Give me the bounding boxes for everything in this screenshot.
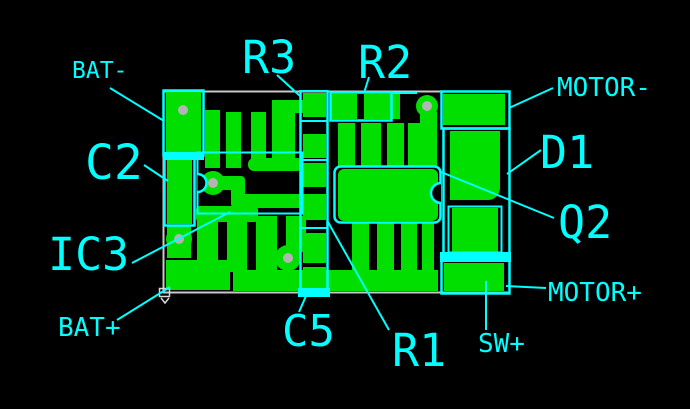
origin-marker-arrow xyxy=(161,298,169,303)
callout-label-c5[interactable]: C5 xyxy=(282,310,335,354)
copper-trace[interactable] xyxy=(272,100,304,113)
callout-label-r1[interactable]: R1 xyxy=(392,328,446,373)
callout-label-motor-plus[interactable]: MOTOR+ xyxy=(548,280,642,306)
copper-trace[interactable] xyxy=(231,194,303,208)
callout-label-q2[interactable]: Q2 xyxy=(558,200,612,245)
copper-pad[interactable] xyxy=(303,233,326,263)
copper-finger[interactable] xyxy=(205,110,220,168)
copper-pad[interactable] xyxy=(364,94,391,119)
copper-pad[interactable] xyxy=(303,163,326,187)
callout-label-r3[interactable]: R3 xyxy=(242,35,296,80)
copper-pad[interactable] xyxy=(303,267,326,288)
copper-pad-motor-minus[interactable] xyxy=(443,94,505,125)
callout-leader-motor-plus[interactable] xyxy=(506,286,546,288)
copper-pad[interactable] xyxy=(331,94,357,119)
pcb-editor-canvas: BAT-C2IC3BAT+R3R2MOTOR-D1Q2MOTOR+SW+R1C5 xyxy=(0,0,690,409)
q2-notch xyxy=(431,183,441,203)
copper-pad[interactable] xyxy=(303,93,326,117)
drill-hole xyxy=(283,253,293,263)
callout-label-bat-minus[interactable]: BAT- xyxy=(72,60,127,83)
callout-leader-motor-minus[interactable] xyxy=(509,88,553,108)
copper-pad-motor-plus[interactable] xyxy=(444,263,504,291)
copper-trace[interactable] xyxy=(248,158,303,171)
copper-finger[interactable] xyxy=(361,123,381,167)
copper-pad[interactable] xyxy=(303,194,326,220)
copper-pad-bat-minus[interactable] xyxy=(166,92,201,155)
copper-pour[interactable] xyxy=(338,169,438,221)
copper-finger[interactable] xyxy=(352,223,369,272)
callout-leader-bat-minus[interactable] xyxy=(110,88,164,121)
callout-label-d1[interactable]: D1 xyxy=(540,130,594,175)
copper-finger[interactable] xyxy=(227,216,247,272)
drill-hole xyxy=(208,178,218,188)
callout-label-c2[interactable]: C2 xyxy=(85,139,143,187)
copper-pad-d1[interactable] xyxy=(450,131,500,200)
callout-leader-d1[interactable] xyxy=(507,150,541,174)
outline-c5-band xyxy=(298,288,330,297)
drill-hole xyxy=(422,101,432,111)
copper-finger[interactable] xyxy=(256,216,277,272)
outline-motor-plus-band xyxy=(440,252,511,262)
copper-pad-q2[interactable] xyxy=(452,208,498,252)
ic3-notch xyxy=(198,174,207,192)
copper-finger[interactable] xyxy=(377,223,394,272)
copper-pad[interactable] xyxy=(303,134,326,158)
copper-finger[interactable] xyxy=(387,123,404,167)
callout-label-r2[interactable]: R2 xyxy=(358,40,412,85)
callout-label-sw-plus[interactable]: SW+ xyxy=(478,331,525,357)
copper-finger[interactable] xyxy=(338,123,355,167)
drill-hole xyxy=(178,105,188,115)
copper-finger[interactable] xyxy=(226,112,241,168)
callout-label-bat-plus[interactable]: BAT+ xyxy=(58,315,121,341)
callout-leader-bat-plus[interactable] xyxy=(117,287,170,320)
copper-finger[interactable] xyxy=(401,223,417,272)
copper-finger[interactable] xyxy=(422,223,434,272)
callout-label-motor-minus[interactable]: MOTOR- xyxy=(557,75,651,101)
copper-finger[interactable] xyxy=(408,123,427,167)
copper-trace[interactable] xyxy=(233,270,438,291)
copper-trace[interactable] xyxy=(167,158,192,224)
callout-label-ic3[interactable]: IC3 xyxy=(48,232,129,277)
